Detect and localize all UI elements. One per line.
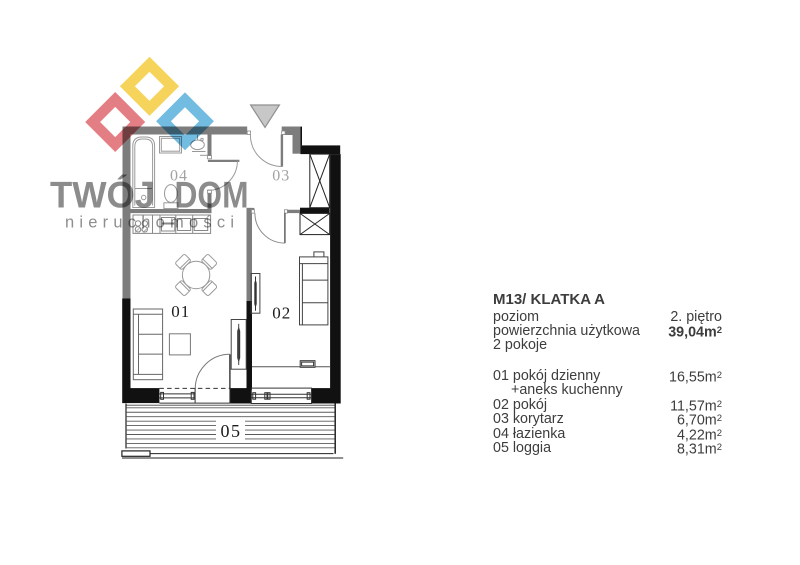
svg-text:DOM: DOM bbox=[175, 175, 249, 216]
svg-text:TWÓJ: TWÓJ bbox=[50, 174, 155, 216]
svg-text:nieruchomości: nieruchomości bbox=[65, 214, 234, 232]
